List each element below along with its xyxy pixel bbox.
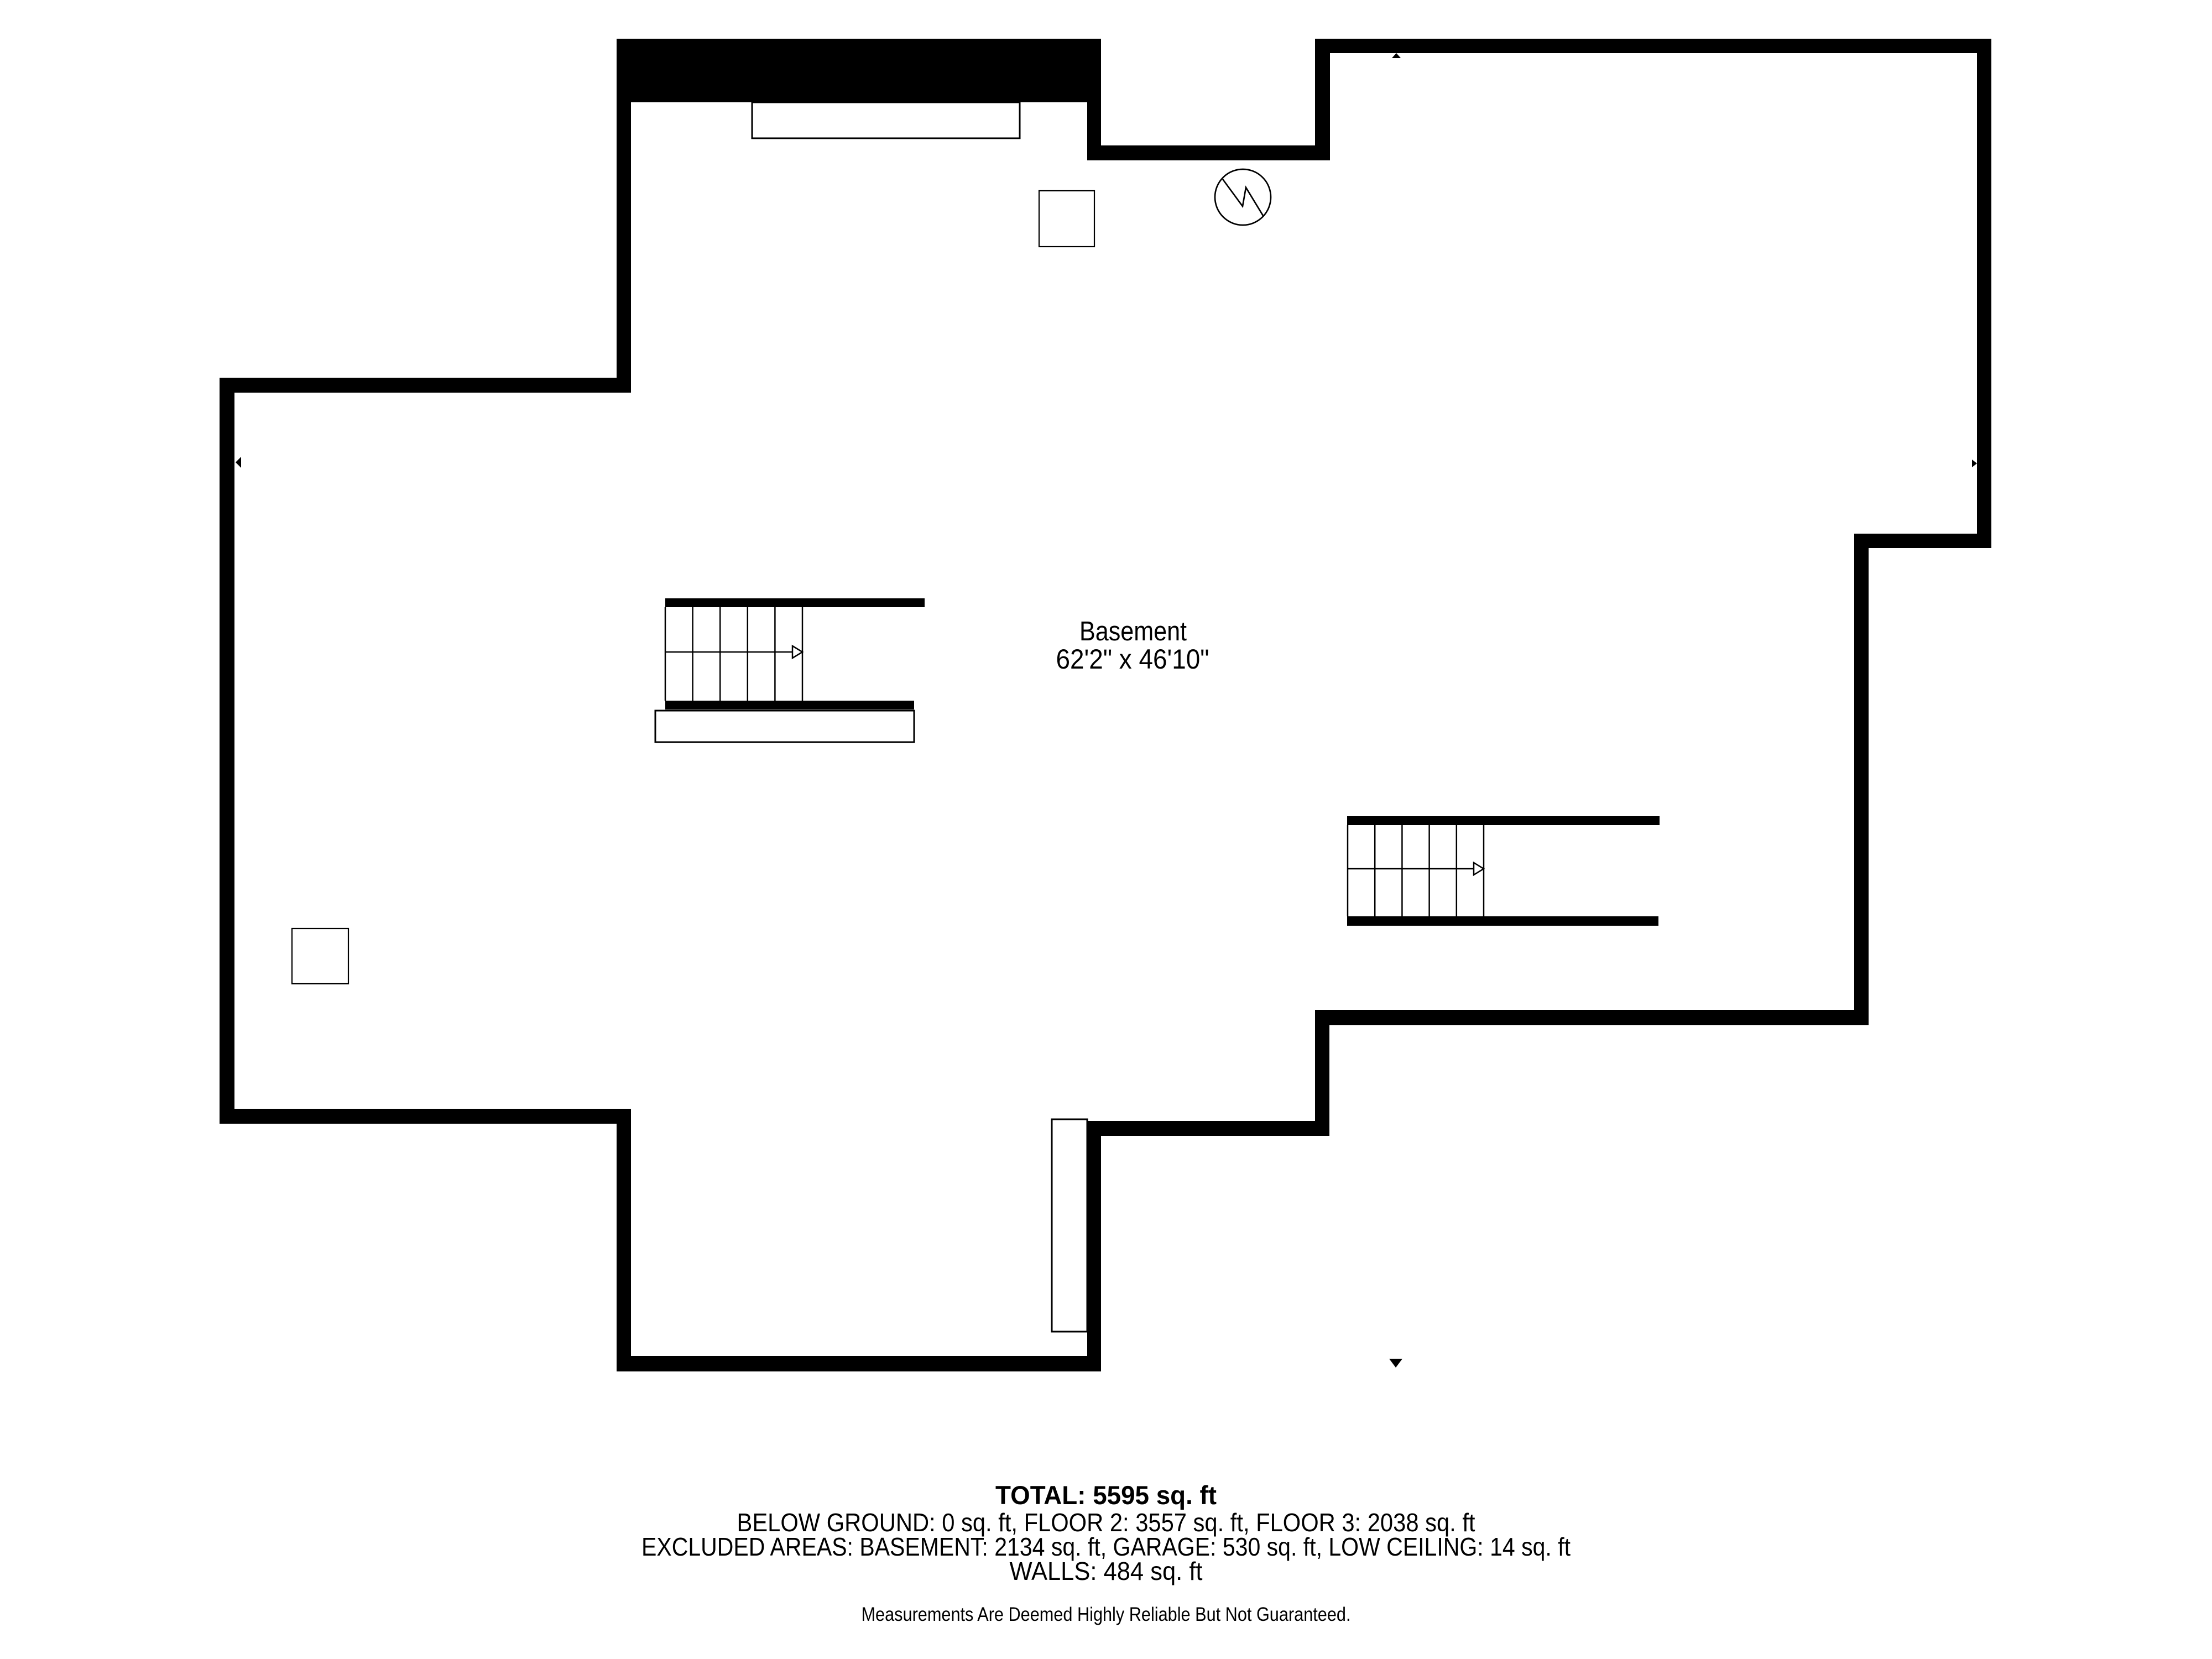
svg-text:Measurements Are Deemed Highly: Measurements Are Deemed Highly Reliable … [862,1604,1351,1625]
svg-text:Basement: Basement [1079,616,1187,646]
svg-text:WALLS: 484 sq. ft: WALLS: 484 sq. ft [1010,1557,1203,1585]
svg-text:TOTAL: 5595 sq. ft: TOTAL: 5595 sq. ft [995,1480,1217,1510]
svg-text:62'2" x 46'10": 62'2" x 46'10" [1056,644,1209,675]
